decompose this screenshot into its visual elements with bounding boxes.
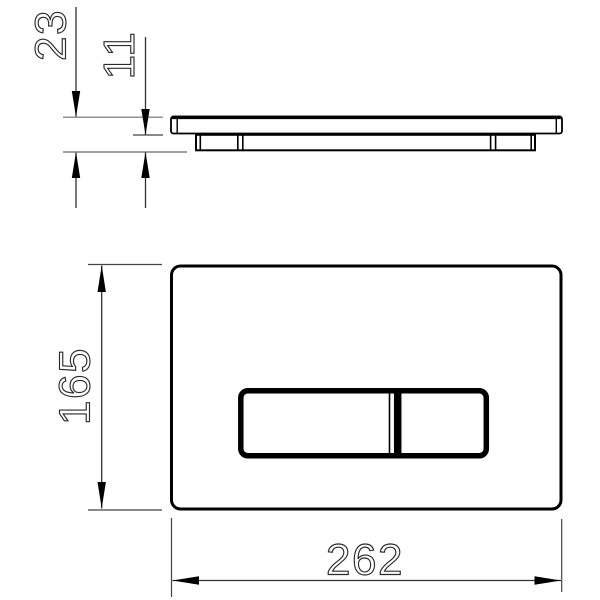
dim23-arrow-down: [72, 91, 80, 117]
dimension-label-front-width: 262: [326, 536, 404, 585]
dim262-arrow-right: [535, 576, 562, 584]
dim165-arrow-up: [98, 266, 106, 293]
dimension-plate-thickness: 11: [95, 31, 163, 208]
flush-plate-drawing: 23 11 165 262: [0, 0, 600, 600]
dim23-arrow-up: [72, 152, 80, 178]
dimension-front-height: 165: [51, 265, 163, 511]
dim11-arrow-down: [141, 109, 149, 135]
dim262-arrow-left: [173, 576, 200, 584]
side-view: [171, 117, 562, 151]
dimension-label-plate-thickness: 11: [95, 31, 144, 80]
button-surround-outline: [241, 391, 486, 456]
dim11-arrow-up: [141, 152, 149, 178]
side-frame-outline: [196, 135, 535, 151]
technical-drawing-canvas: 23 11 165 262: [0, 0, 600, 600]
front-view: [172, 266, 562, 509]
dimension-label-total-thickness: 23: [27, 9, 76, 61]
front-plate-outline: [172, 266, 562, 509]
dimension-label-front-height: 165: [51, 347, 100, 425]
dim165-arrow-down: [98, 482, 106, 509]
dimension-front-width: 262: [172, 518, 562, 597]
